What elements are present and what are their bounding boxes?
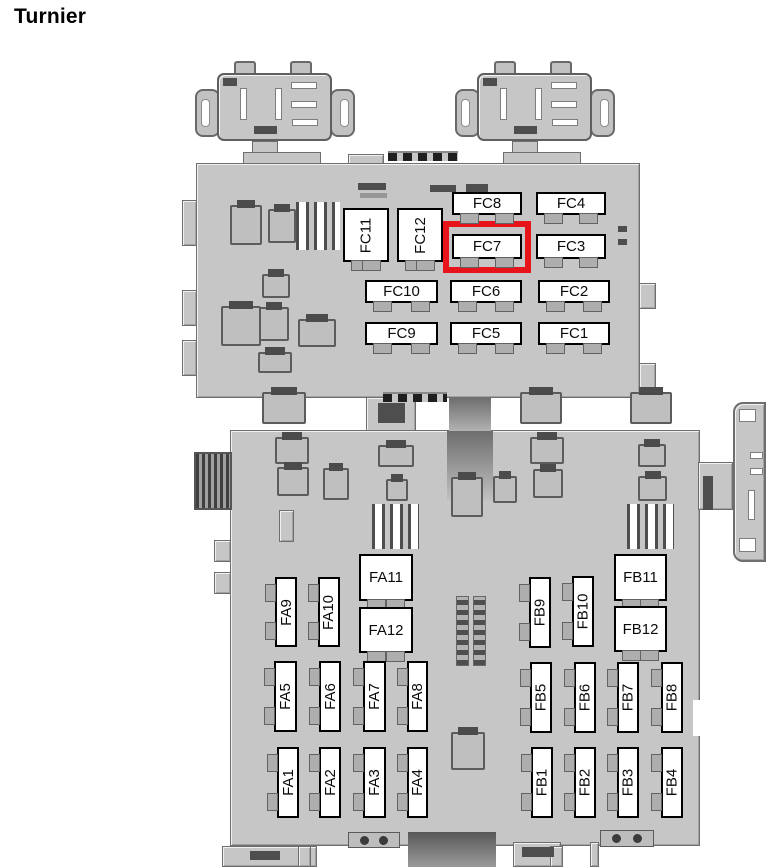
connector-detail: [223, 78, 237, 86]
relay-socket: [386, 479, 408, 501]
terminal-block: [456, 596, 469, 666]
terminal-block: [627, 504, 674, 549]
casting-detail: [618, 239, 627, 245]
casting-detail: [378, 403, 405, 423]
side-connector: [194, 452, 232, 510]
connector-slot: [750, 468, 763, 475]
left-tab: [182, 290, 197, 326]
page-title: Turnier: [14, 5, 86, 29]
fuse-fa4: FA4: [407, 747, 428, 818]
fuse-fb11: FB11: [614, 554, 667, 601]
fuse-fb6: FB6: [574, 662, 596, 733]
fuse-fc9: FC9: [365, 322, 438, 345]
fuse-fa7: FA7: [363, 661, 386, 732]
mount-fitting: [348, 832, 400, 848]
connector-ear: [330, 89, 355, 137]
connector-slot: [291, 82, 317, 89]
casting-detail: [430, 185, 456, 192]
connector-slot: [551, 82, 577, 89]
fuse-box-diagram-page: Turnier: [0, 0, 766, 867]
fuse-fc1: FC1: [538, 322, 610, 345]
relay-socket: [451, 477, 483, 517]
relay-socket: [258, 352, 292, 373]
casting-detail: [522, 847, 554, 857]
fuse-fb12: FB12: [614, 606, 667, 652]
fuse-fa2: FA2: [319, 747, 341, 818]
right-tab: [639, 283, 656, 309]
relay-socket: [323, 468, 349, 500]
top-connector-left: [195, 60, 357, 170]
connector-slot: [240, 88, 247, 120]
connector-slot: [292, 119, 318, 126]
fuse-fa1: FA1: [277, 747, 299, 818]
casting-detail: [358, 183, 386, 190]
relay-socket: [275, 437, 309, 464]
connector-detail: [254, 126, 277, 134]
relay-socket: [230, 205, 262, 245]
mount-foot: [590, 842, 599, 867]
fuse-fc5: FC5: [450, 322, 522, 345]
relay-socket: [530, 437, 564, 464]
relay-socket: [638, 444, 666, 467]
casting-detail: [408, 832, 496, 867]
left-tab: [214, 540, 231, 562]
mount-fitting: [600, 830, 654, 847]
casting-detail: [466, 184, 488, 192]
casting-detail: [383, 392, 447, 402]
relay-socket: [298, 319, 336, 347]
connector-slot: [552, 119, 578, 126]
relay-socket: [221, 306, 261, 346]
connector-slot: [275, 88, 282, 120]
casting-detail: [618, 226, 627, 232]
fuse-fb10: FB10: [572, 576, 594, 647]
fuse-fb5: FB5: [530, 662, 552, 733]
relay-socket: [493, 476, 517, 503]
fuse-fb1: FB1: [531, 747, 553, 818]
casting-detail: [360, 193, 387, 198]
fuse-fc4: FC4: [536, 192, 606, 215]
casting-detail: [279, 510, 294, 542]
relay-socket: [451, 732, 485, 770]
fuse-fc11: FC11: [343, 208, 389, 262]
left-tab: [182, 200, 197, 246]
fuse-fb9: FB9: [529, 577, 551, 648]
fuse-fc8: FC8: [452, 192, 522, 215]
fuse-fb4: FB4: [661, 747, 683, 818]
relay-socket: [268, 209, 296, 243]
connector-slot: [535, 88, 542, 120]
relay-socket: [259, 307, 289, 341]
fuse-fc6: FC6: [450, 280, 522, 303]
fuse-fa12: FA12: [359, 607, 413, 653]
fuse-fa10: FA10: [318, 577, 340, 647]
connector-slot: [551, 101, 577, 108]
relay-socket: [638, 476, 667, 501]
connector-slot: [500, 88, 507, 120]
fuse-fa6: FA6: [319, 661, 341, 732]
fuse-fc7: FC7: [452, 234, 522, 259]
fuse-fc10: FC10: [365, 280, 438, 303]
mount-foot: [298, 846, 311, 867]
fuse-fb7: FB7: [617, 662, 639, 733]
fuse-fa11: FA11: [359, 554, 413, 601]
mount-bracket: [262, 392, 306, 424]
fuse-fa5: FA5: [274, 661, 297, 732]
fuse-fb2: FB2: [574, 747, 596, 818]
relay-socket: [533, 469, 563, 498]
right-tab: [639, 363, 656, 389]
connector-detail: [388, 151, 458, 161]
fuse-fb3: FB3: [617, 747, 639, 818]
relay-socket: [277, 467, 309, 496]
left-tab: [182, 340, 197, 376]
mount-bracket: [520, 392, 562, 424]
left-tab: [214, 572, 231, 594]
fuse-fa3: FA3: [363, 747, 386, 818]
edge-notch: [693, 700, 701, 736]
connector-slot: [291, 101, 317, 108]
connector-detail: [514, 126, 537, 134]
mount-bracket: [630, 392, 672, 424]
fuse-fb8: FB8: [661, 662, 683, 733]
casting-detail: [250, 851, 280, 860]
terminal-block: [296, 202, 340, 250]
connector-detail: [483, 78, 497, 86]
connector-slot: [750, 452, 763, 459]
connector-slot: [748, 490, 755, 520]
fuse-fa8: FA8: [407, 661, 428, 732]
connector-slot: [739, 409, 756, 422]
relay-socket: [378, 445, 414, 467]
fuse-fa9: FA9: [275, 577, 297, 647]
fuse-fc3: FC3: [536, 234, 606, 259]
fuse-fc12: FC12: [397, 208, 443, 262]
terminal-block: [473, 596, 486, 666]
top-connector-right: [455, 60, 617, 170]
connector-slot: [739, 538, 756, 552]
fuse-fc2: FC2: [538, 280, 610, 303]
casting-detail: [703, 476, 713, 510]
relay-socket: [262, 274, 290, 298]
connector-ear: [590, 89, 615, 137]
terminal-block: [372, 504, 419, 549]
